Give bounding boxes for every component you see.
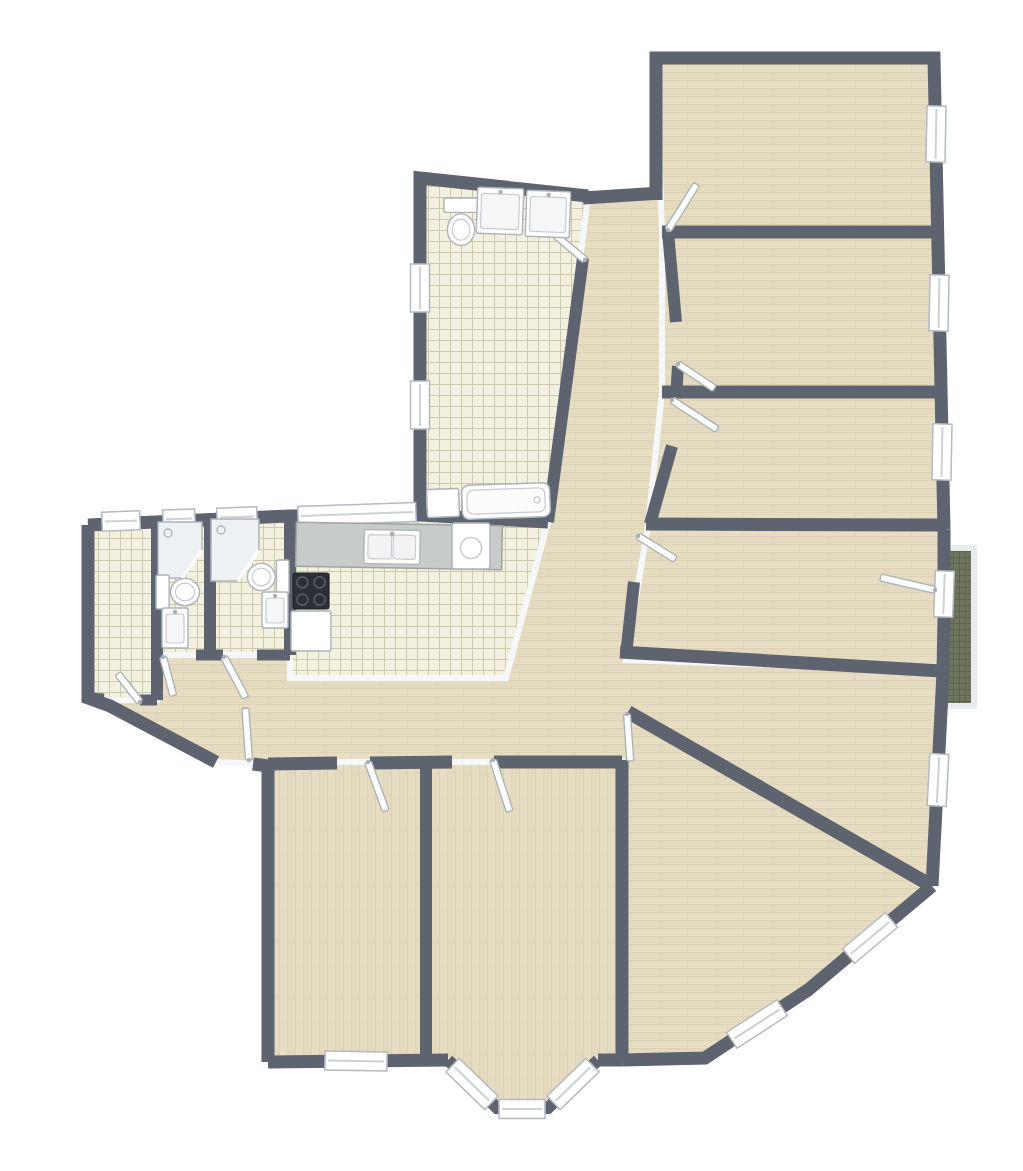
wall-int-utility-bottom-a (88, 698, 104, 699)
room2-window-sill (939, 278, 940, 328)
room3-window-sill (942, 427, 943, 477)
bedroom-middle-bay-floor (426, 762, 622, 1108)
wc2-window-sill (220, 516, 254, 517)
wall-ext-corridor-top (583, 193, 661, 198)
fixture-bathroom-vanity-2 (525, 190, 571, 238)
window-room1-window (926, 106, 946, 162)
floor-plan-canvas (0, 0, 1023, 1171)
fixture-wc1-vanity (162, 608, 188, 648)
fixture-wc2-toilet (247, 560, 289, 594)
fixture-kitchen-cabinet (291, 611, 331, 651)
room1-window-sill (936, 109, 937, 159)
balcony-door-glass-sill (943, 574, 944, 614)
fixture-bathroom-bathtub (461, 482, 550, 519)
fixture-bathroom-cabinet (427, 488, 460, 517)
bedroom-left-floor (268, 762, 426, 1062)
room-top-1-floor (656, 58, 938, 232)
window-bay-window-center (499, 1100, 545, 1119)
wall-int-room3-room4 (646, 524, 943, 525)
fixture-bathroom-toilet (444, 198, 478, 246)
fixture-wc1-toilet (156, 575, 200, 609)
fixture-kitchen-sink (364, 530, 421, 565)
fixture-kitchen-cooktop (293, 573, 329, 609)
window-bathroom-window-2 (411, 381, 430, 429)
floor-plan-screenshot (0, 0, 1023, 1171)
bedroom-left-window-sill (328, 1061, 384, 1062)
wall-int-hall-bottom-a (268, 763, 337, 764)
window-balcony-door-glass (934, 571, 955, 618)
window-utility-window (102, 511, 141, 531)
wall-int-corridor-right-a (668, 232, 676, 322)
window-room3-window (932, 424, 952, 480)
window-dining-window (927, 754, 949, 807)
wall-ext-hall-stub (253, 764, 268, 766)
fixture-kitchen-washer (452, 523, 490, 569)
fixture-bathroom-vanity-1 (476, 187, 524, 235)
utility-window-sill (105, 520, 137, 521)
window-bathroom-window-1 (411, 264, 430, 312)
wall-int-hall-bottom-b (370, 762, 452, 763)
room-top-2-floor (662, 232, 941, 392)
window-room2-window (929, 275, 949, 331)
wc1-window-sill (166, 519, 192, 520)
wall-int-corridor-right-d (626, 582, 634, 655)
fixture-wc2-vanity (262, 592, 288, 628)
window-bedroom-left-window (325, 1051, 387, 1071)
